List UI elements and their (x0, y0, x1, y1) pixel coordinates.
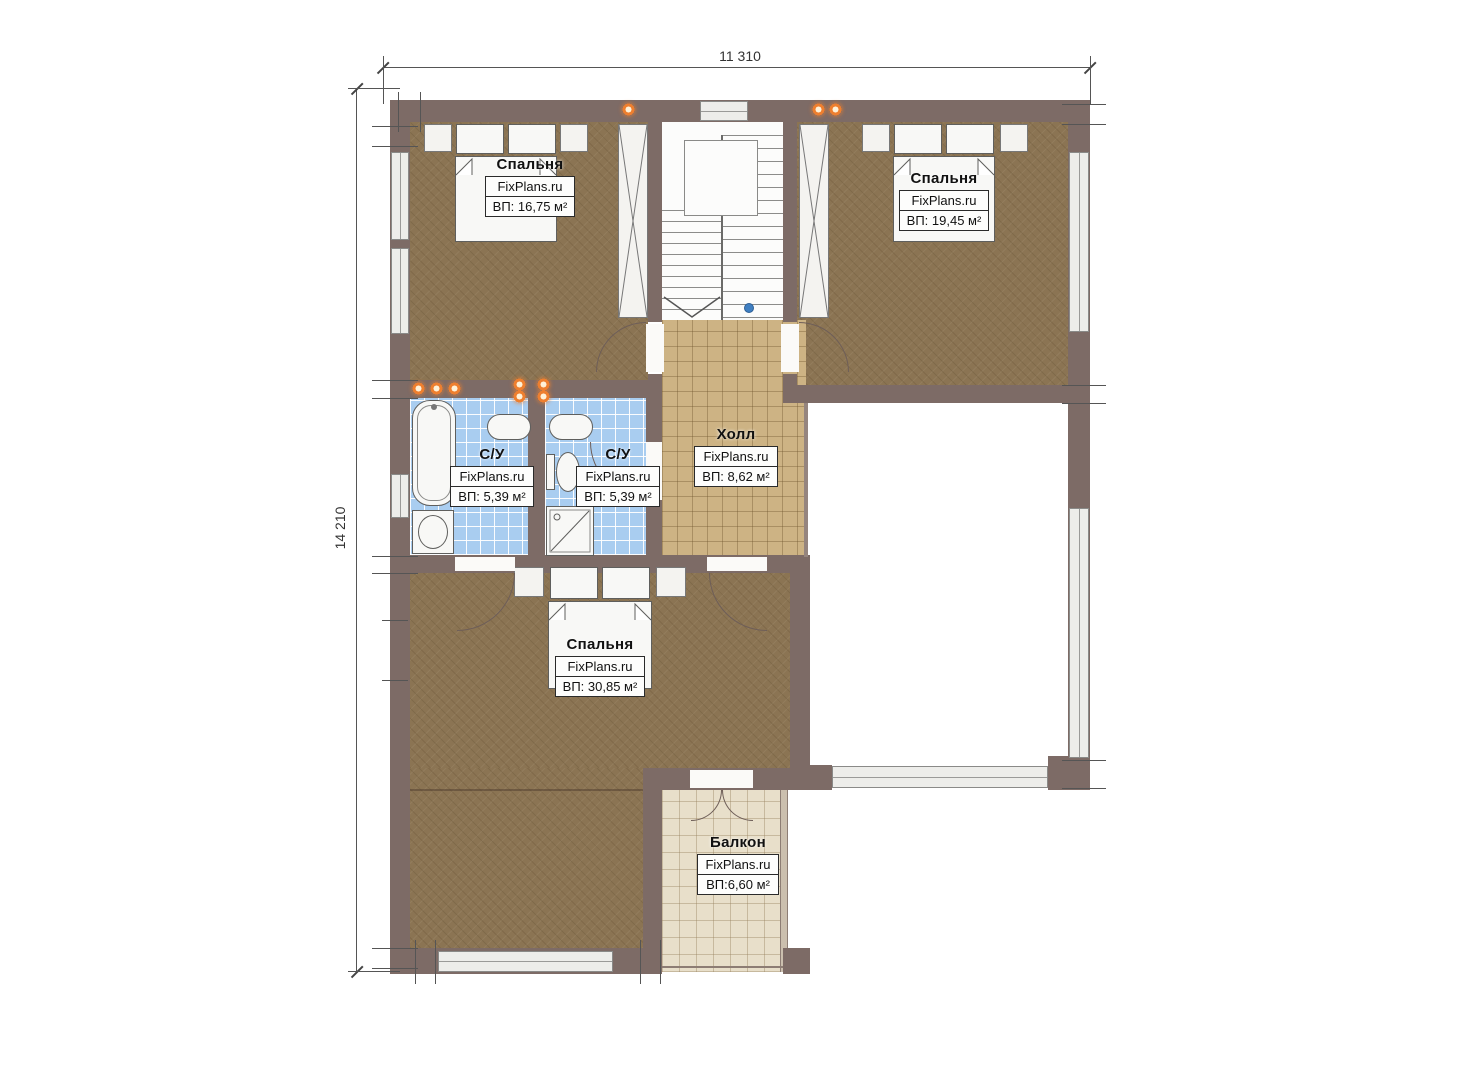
dimension-extension (348, 88, 400, 89)
wall-light-icon (537, 390, 550, 403)
wall-light-icon (412, 382, 425, 395)
window-void-bottom (832, 766, 1048, 788)
room-area: ВП: 16,75 м² (486, 196, 575, 216)
room-area: ВП:6,60 м² (698, 874, 777, 894)
room-brand: FixPlans.ru (451, 467, 532, 486)
bed-pillow (894, 124, 942, 154)
room-brand: FixPlans.ru (698, 855, 777, 874)
room-brand: FixPlans.ru (486, 177, 575, 196)
dimension-extension (1090, 56, 1091, 104)
floor-plan-canvas: Спальня FixPlans.ru ВП: 16,75 м² Спальня… (0, 0, 1474, 1080)
axis-tick (660, 940, 661, 984)
bedroom-3-floor-divider (410, 789, 643, 791)
axis-tick (1062, 385, 1106, 386)
wall-bath2-right-b (646, 500, 662, 555)
axis-tick (435, 940, 436, 984)
axis-tick (372, 398, 418, 399)
sink-bathroom2 (549, 414, 593, 440)
room-name: Спальня (874, 170, 1014, 187)
wall-bedroom2-void (797, 385, 1090, 403)
room-label-bedroom1: Спальня FixPlans.ru ВП: 16,75 м² (460, 156, 600, 217)
room-label-bedroom3: Спальня FixPlans.ru ВП: 30,85 м² (536, 636, 664, 697)
door-opening-bedroom2 (781, 324, 799, 372)
window-void-right (1069, 508, 1089, 758)
dimension-extension (383, 56, 384, 104)
bed-pillow (946, 124, 994, 154)
bedroom-3-floor-lower (410, 768, 643, 948)
sink-bathroom1 (487, 414, 531, 440)
shower-tray (546, 506, 594, 556)
pier-void-bottom-right (1048, 756, 1090, 790)
axis-tick (1062, 124, 1106, 125)
dimension-height-line (356, 88, 357, 972)
axis-tick (372, 556, 418, 557)
door-opening-bedroom1 (646, 324, 664, 372)
washbasin-cabinet (412, 510, 454, 554)
axis-tick (372, 948, 418, 949)
room-area: ВП: 5,39 м² (577, 486, 658, 506)
axis-tick (382, 620, 408, 621)
staircase-handrail (684, 140, 758, 216)
axis-tick (372, 126, 418, 127)
window-bedroom1-a (391, 152, 409, 240)
bed-pillow (602, 567, 650, 599)
window-bedroom3-bottom (438, 951, 613, 972)
dimension-height-label: 14 210 (332, 488, 348, 568)
wall-light-icon (812, 103, 825, 116)
axis-tick (1062, 403, 1106, 404)
washbasin-bowl (418, 515, 448, 549)
wall-light-icon (448, 382, 461, 395)
room-brand: FixPlans.ru (695, 447, 776, 466)
room-name: Балкон (686, 834, 790, 851)
room-area: ВП: 8,62 м² (695, 466, 776, 486)
room-name: Холл (690, 426, 782, 443)
wardrobe-bedroom1 (618, 124, 648, 318)
wardrobe-bedroom2 (799, 124, 829, 318)
axis-tick (420, 92, 421, 132)
window-bedroom1-b (391, 248, 409, 334)
door-opening-bedroom3 (707, 557, 767, 571)
dimension-width-label: 11 310 (700, 48, 780, 64)
wall-stair-left-stub (648, 374, 662, 398)
staircase-direction-arrow (663, 296, 721, 318)
room-area: ВП: 30,85 м² (556, 676, 645, 696)
wall-bedroom3-right (790, 573, 810, 790)
dimension-width-line (383, 67, 1090, 68)
wall-light-icon (829, 103, 842, 116)
room-label-bedroom2: Спальня FixPlans.ru ВП: 19,45 м² (874, 170, 1014, 231)
room-brand: FixPlans.ru (577, 467, 658, 486)
nightstand (1000, 124, 1028, 152)
toilet-tank (546, 454, 555, 490)
pier-void-bottom-left (810, 765, 832, 790)
window-bedroom2 (1069, 152, 1089, 332)
room-area: ВП: 5,39 м² (451, 486, 532, 506)
wall-stair-right (783, 122, 797, 322)
axis-tick (382, 680, 408, 681)
axis-tick (398, 92, 399, 132)
room-name: С/У (570, 446, 666, 463)
room-name: Спальня (536, 636, 664, 653)
axis-tick (372, 573, 418, 574)
bed-pillow (508, 124, 556, 154)
nightstand (560, 124, 588, 152)
axis-tick (372, 380, 418, 381)
window-stairwell (700, 101, 748, 121)
room-label-balcony: Балкон FixPlans.ru ВП:6,60 м² (686, 834, 790, 895)
axis-tick (640, 940, 641, 984)
wall-stair-right-stub (783, 374, 797, 403)
nightstand (514, 567, 544, 597)
wall-light-icon (622, 103, 635, 116)
room-label-bathroom2: С/У FixPlans.ru ВП: 5,39 м² (570, 446, 666, 507)
nightstand (656, 567, 686, 597)
bed-pillow (456, 124, 504, 154)
room-area: ВП: 19,45 м² (900, 210, 989, 230)
room-label-bathroom1: С/У FixPlans.ru ВП: 5,39 м² (444, 446, 540, 507)
bed-pillow (550, 567, 598, 599)
axis-tick (372, 968, 418, 969)
axis-tick (1062, 788, 1106, 789)
room-label-hall: Холл FixPlans.ru ВП: 8,62 м² (690, 426, 782, 487)
room-name: С/У (444, 446, 540, 463)
balcony-bottom-railing (662, 966, 788, 968)
room-brand: FixPlans.ru (556, 657, 645, 676)
wall-stair-left (648, 122, 662, 322)
axis-tick (372, 146, 418, 147)
axis-tick (415, 940, 416, 984)
hall-void-railing (804, 403, 808, 557)
wall-bath2-right-a (646, 398, 662, 442)
pier-balcony-corner (783, 948, 810, 974)
window-bathroom1 (391, 474, 409, 518)
room-name: Спальня (460, 156, 600, 173)
door-opening-bathroom1 (455, 557, 515, 571)
door-opening-balcony (690, 770, 753, 788)
wall-light-icon (513, 390, 526, 403)
axis-tick (1062, 760, 1106, 761)
nightstand (862, 124, 890, 152)
wall-light-icon (430, 382, 443, 395)
wall-bedroom3-balcony-side (643, 790, 662, 948)
axis-tick (1062, 104, 1106, 105)
level-mark-icon (744, 303, 754, 313)
room-brand: FixPlans.ru (900, 191, 989, 210)
bathtub-faucet (431, 404, 437, 410)
dimension-extension (348, 971, 400, 972)
nightstand (424, 124, 452, 152)
